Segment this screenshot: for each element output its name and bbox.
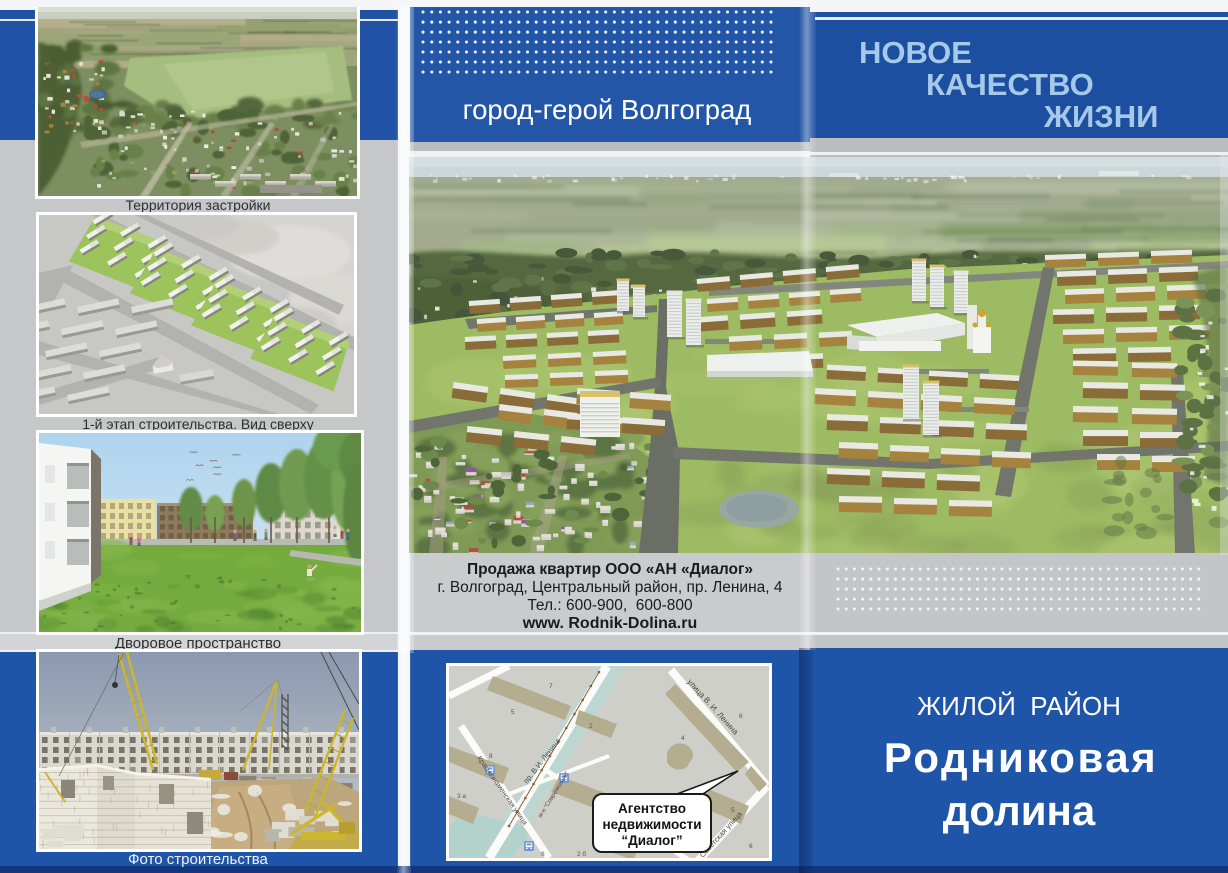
svg-text:2: 2 [589, 723, 593, 730]
svg-text:6: 6 [541, 851, 545, 858]
svg-text:Агентство: Агентство [618, 801, 686, 816]
svg-text:8: 8 [489, 753, 493, 760]
svg-text:6: 6 [739, 713, 743, 720]
svg-text:5: 5 [511, 709, 515, 716]
svg-text:3 а: 3 а [457, 793, 466, 800]
svg-text:4: 4 [681, 735, 685, 742]
svg-text:5: 5 [731, 807, 735, 814]
svg-text:2 б: 2 б [577, 850, 586, 858]
svg-text:недвижимости: недвижимости [603, 817, 702, 832]
svg-text:6: 6 [749, 843, 753, 850]
svg-text:7: 7 [549, 683, 553, 690]
svg-text:“Диалог”: “Диалог” [621, 833, 682, 848]
